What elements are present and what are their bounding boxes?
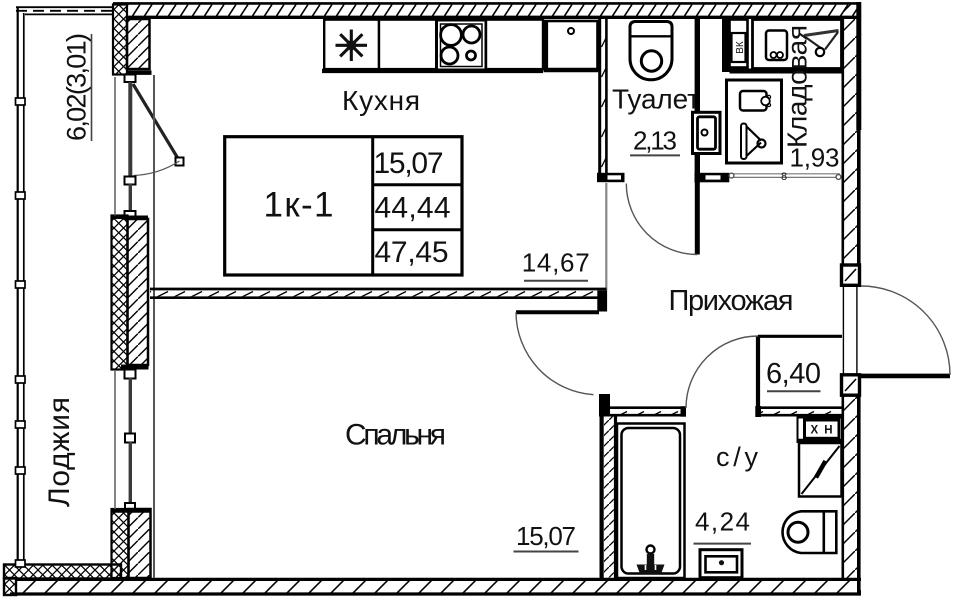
svg-text:ВК: ВК bbox=[735, 41, 746, 54]
svg-text:15,07: 15,07 bbox=[516, 521, 576, 551]
svg-text:8: 8 bbox=[781, 171, 787, 183]
svg-text:44,44: 44,44 bbox=[375, 192, 451, 225]
svg-text:Прихожая: Прихожая bbox=[669, 285, 794, 317]
svg-text:2,13: 2,13 bbox=[633, 126, 677, 156]
svg-text:с/у: с/у bbox=[716, 442, 759, 472]
svg-text:15,07: 15,07 bbox=[374, 147, 444, 180]
svg-text:Кухня: Кухня bbox=[342, 85, 420, 116]
svg-text:47,45: 47,45 bbox=[375, 236, 449, 269]
svg-text:1к-1: 1к-1 bbox=[264, 186, 334, 225]
svg-text:4,24: 4,24 bbox=[695, 507, 750, 537]
svg-text:Спальня: Спальня bbox=[345, 419, 446, 452]
svg-text:14,67: 14,67 bbox=[522, 248, 590, 278]
svg-text:6,02(3,01): 6,02(3,01) bbox=[62, 33, 92, 141]
svg-text:6,40: 6,40 bbox=[766, 358, 821, 390]
svg-text:Туалет: Туалет bbox=[612, 84, 700, 115]
svg-text:Кладовая: Кладовая bbox=[782, 25, 813, 148]
svg-text:1,93: 1,93 bbox=[790, 143, 840, 173]
svg-text:Лоджия: Лоджия bbox=[43, 397, 76, 507]
